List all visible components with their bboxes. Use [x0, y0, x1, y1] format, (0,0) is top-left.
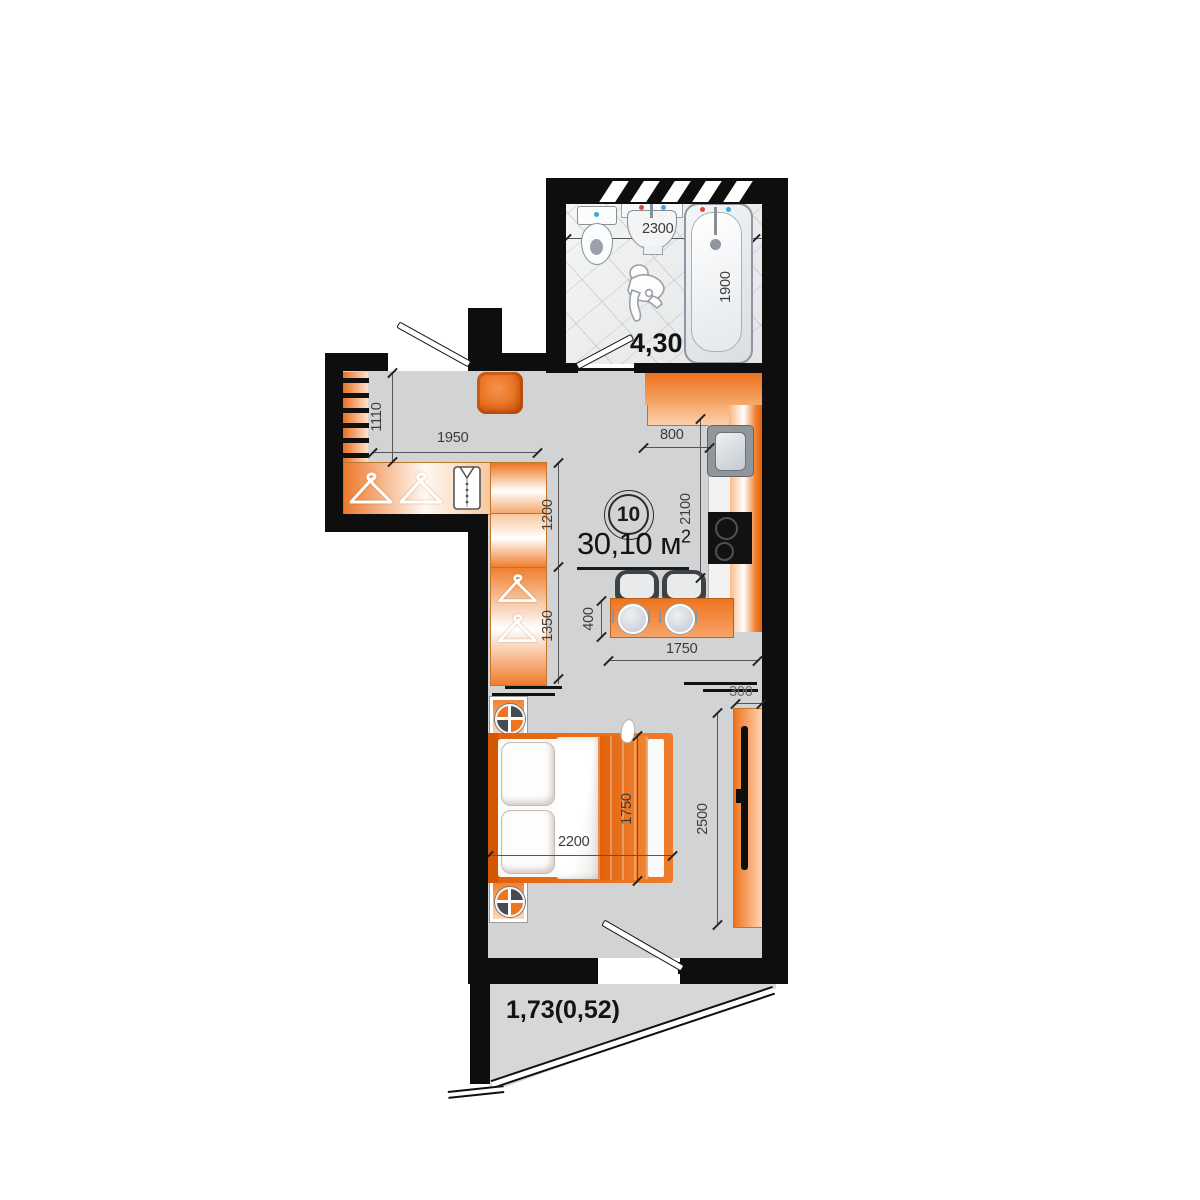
cutlery-icon: [695, 610, 697, 623]
pouf: [477, 372, 523, 414]
bed: [488, 733, 673, 883]
kitchen-counter-top: [645, 373, 762, 405]
dim-closet-lower: 1350: [540, 594, 558, 658]
wall: [680, 958, 788, 984]
dim-line: [372, 452, 538, 453]
partition-mark: [505, 686, 562, 689]
dim-line: [488, 855, 673, 856]
dim-line: [601, 600, 602, 637]
nightstand-lamp-icon: [495, 704, 525, 734]
dim-bar-depth: 400: [581, 587, 599, 651]
shelf-slat: [339, 453, 369, 458]
wardrobe-module: [490, 513, 547, 569]
shelf-slat: [339, 393, 369, 398]
dim-tv-depth: 300: [729, 684, 753, 700]
tv-console: [733, 708, 764, 928]
entrance-door-leaf: [396, 321, 471, 367]
balcony-area-label: 1,73(0,52): [506, 996, 620, 1025]
tv-stand: [736, 789, 742, 803]
wall: [468, 958, 598, 984]
dim-bed-depth: 1750: [619, 777, 637, 841]
hanger-icon: [348, 470, 394, 508]
plate-icon: [665, 604, 695, 634]
dim-bedroom-depth: 2500: [695, 787, 713, 851]
wall: [470, 984, 490, 1084]
wall: [546, 204, 566, 372]
shelf-slat: [339, 408, 369, 413]
door-threshold: [578, 368, 634, 371]
cutlery-icon: [648, 610, 650, 623]
dim-bar-width: 1750: [666, 641, 697, 657]
dim-line: [608, 660, 758, 661]
toilet-icon: [577, 206, 617, 266]
bar-chair: [615, 570, 659, 601]
bathtub-icon: [684, 203, 749, 360]
wardrobe-module: [490, 462, 547, 515]
cooktop-icon: [708, 512, 752, 564]
kitchen-sink-icon: [707, 425, 754, 477]
dim-bed-width: 2200: [558, 834, 589, 850]
bathroom-area-label: 4,30: [630, 328, 683, 359]
shoe-shelf: [343, 372, 368, 462]
plate-icon: [618, 604, 648, 634]
dim-line: [558, 462, 559, 567]
kitchen-counter-corner: [647, 405, 731, 426]
dim-bathtub-length: 1900: [718, 255, 736, 319]
shelf-slat: [339, 423, 369, 428]
shelf-slat: [339, 378, 369, 383]
dim-line: [558, 567, 559, 684]
hanger-icon: [496, 572, 539, 606]
door-jamb: [590, 960, 598, 973]
unit-area-value: 30,10 м: [577, 526, 681, 561]
wall: [498, 353, 548, 371]
dim-line: [637, 735, 638, 881]
cutlery-icon: [659, 610, 661, 623]
person-figure-icon: [618, 260, 674, 332]
dim-line: [717, 712, 718, 925]
dim-closet-upper: 1200: [540, 483, 558, 547]
unit-area-sup: 2: [681, 527, 691, 547]
unit-area-label: 30,10 м2: [577, 526, 691, 562]
wall: [634, 363, 762, 373]
wall-pier: [468, 308, 502, 371]
wall: [325, 353, 343, 532]
dim-bathroom-width: 2300: [642, 221, 673, 237]
floor-plan: 2300 1900 4,30: [0, 0, 1200, 1200]
cutlery-icon: [612, 610, 614, 623]
tv-icon: [741, 726, 748, 870]
dim-line: [700, 418, 701, 578]
wall: [546, 363, 578, 373]
nightstand-lamp-icon: [495, 887, 525, 917]
dim-line: [735, 703, 762, 704]
shirt-icon: [452, 465, 482, 511]
wall: [325, 514, 470, 532]
nightstand: [489, 879, 528, 923]
hanger-icon: [398, 470, 444, 508]
dim-entry-width: 1950: [437, 430, 468, 446]
balcony-railing-end: [448, 1085, 505, 1099]
dim-entry-depth: 1110: [369, 385, 387, 449]
wall: [762, 204, 788, 984]
wall: [468, 514, 488, 984]
unit-area-underline: [577, 567, 689, 570]
dim-kitchen-corner: 800: [660, 427, 684, 443]
shelf-slat: [339, 438, 369, 443]
dim-line: [392, 372, 393, 462]
hanger-icon: [496, 612, 539, 646]
